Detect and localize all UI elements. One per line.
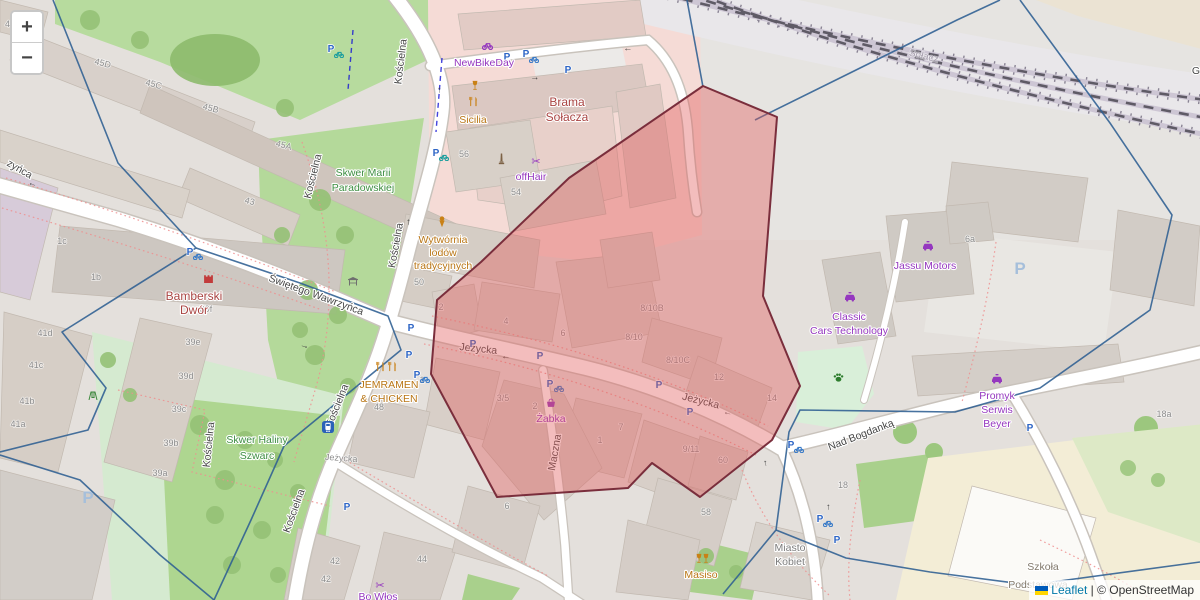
parking-icon: P xyxy=(328,44,335,55)
poi-label-brama-2: Sołacza xyxy=(546,110,589,124)
house-number: 42 xyxy=(330,556,340,566)
parking-icon: P xyxy=(406,350,413,361)
house-number: 39e xyxy=(185,337,200,347)
map-tiles: Kościelna Kościelna Kościelna Kościelna … xyxy=(0,0,1200,600)
house-number: 1b xyxy=(91,272,101,282)
street-label-partial-g: G xyxy=(1192,65,1200,77)
scissors-icon: ✂ xyxy=(531,156,540,168)
poi-label-promyk-2: Serwis xyxy=(981,404,1013,416)
house-number: 44 xyxy=(417,554,427,564)
openstreetmap-link[interactable]: © OpenStreetMap xyxy=(1097,583,1194,597)
zoom-out-button[interactable]: − xyxy=(12,42,42,73)
landmark-icon xyxy=(204,275,213,283)
poi-label-jassu: Jassu Motors xyxy=(894,260,956,272)
house-number: 41d xyxy=(37,328,52,338)
house-number: 56 xyxy=(459,149,469,159)
house-number: 18 xyxy=(838,480,848,490)
poi-label-jemramen-1: JEMRAMEN xyxy=(360,379,419,391)
poi-label-jemramen-2: & CHICKEN xyxy=(360,393,417,405)
poi-label-newbikeday: NewBikeDay xyxy=(454,57,515,69)
attribution-bar: Leaflet | © OpenStreetMap xyxy=(1029,580,1200,600)
poi-label-masiso: Masiso xyxy=(684,569,717,581)
oneway-arrow: → xyxy=(624,46,633,56)
poi-label-skwer-marii-1: Skwer Marii xyxy=(336,167,391,179)
zoom-control: + − xyxy=(10,10,44,75)
poi-label-classic-2: Cars Technology xyxy=(810,325,889,337)
house-number: 6 xyxy=(504,501,509,511)
house-number: 39c xyxy=(172,404,187,414)
parking-area-icon: P xyxy=(82,488,93,507)
poi-label-skwer-marii-2: Paradowskiej xyxy=(332,182,394,194)
poi-label-wytwornia-3: tradycyjnych xyxy=(414,260,473,272)
house-number: 39d xyxy=(178,371,193,381)
zoom-in-button[interactable]: + xyxy=(12,12,42,42)
oneway-arrow: → xyxy=(433,85,444,95)
house-number: 42 xyxy=(321,574,331,584)
house-number: 41a xyxy=(10,419,25,429)
parking-icon: P xyxy=(523,49,530,60)
house-number: 39b xyxy=(163,438,178,448)
parking-icon: P xyxy=(817,514,824,525)
house-number: 41c xyxy=(29,360,44,370)
parking-icon: P xyxy=(408,323,415,334)
parking-icon: P xyxy=(433,148,440,159)
poi-label-promyk-3: Beyer xyxy=(983,418,1011,430)
poi-label-miasto-1: Miasto xyxy=(775,542,806,554)
house-number: 50 xyxy=(414,277,424,287)
ukraine-flag-icon xyxy=(1035,586,1048,595)
house-number: 54 xyxy=(511,187,521,197)
leaflet-link[interactable]: Leaflet xyxy=(1051,583,1087,597)
poi-label-wytwornia-1: Wytwórnia xyxy=(419,234,468,246)
poi-label-sicilia: Sicilia xyxy=(459,114,487,126)
house-number: 1c xyxy=(57,236,67,246)
poi-label-offhair: offHair xyxy=(516,171,547,183)
parking-icon: P xyxy=(565,65,572,76)
poi-label-classic-1: Classic xyxy=(832,311,866,323)
poi-label-bamberski-1: Bamberski xyxy=(166,289,223,303)
parking-icon: P xyxy=(187,247,194,258)
house-number: 58 xyxy=(701,507,711,517)
parking-icon: P xyxy=(788,440,795,451)
poi-label-wytwornia-2: lodów xyxy=(429,247,457,259)
poi-label-bo-wlos: Bo Włos xyxy=(358,591,397,600)
oneway-arrow: → xyxy=(402,217,412,227)
parking-icon: P xyxy=(1027,423,1034,434)
poi-label-szkola-1: Szkoła xyxy=(1027,561,1059,573)
poi-label-bamberski-2: Dwór xyxy=(180,303,208,317)
poi-label-brama-1: Brama xyxy=(549,95,585,109)
tram-stop-icon xyxy=(322,421,334,433)
house-number: 18a xyxy=(1156,409,1171,419)
oneway-arrow: → xyxy=(822,502,833,512)
house-number: 39a xyxy=(152,468,167,478)
parking-icon: P xyxy=(344,502,351,513)
poi-label-skwer-haliny-2: Szwarc xyxy=(240,450,274,462)
map-canvas[interactable]: Kościelna Kościelna Kościelna Kościelna … xyxy=(0,0,1200,600)
poi-label-skwer-haliny-1: Skwer Haliny xyxy=(226,434,288,446)
poi-label-promyk-1: Promyk xyxy=(979,390,1015,402)
oneway-arrow: → xyxy=(530,72,540,83)
attribution-separator: | xyxy=(1091,583,1094,597)
parking-icon: P xyxy=(834,535,841,546)
parking-area-icon: P xyxy=(1014,259,1025,278)
house-number: 6a xyxy=(965,234,975,244)
house-number: 41b xyxy=(19,396,34,406)
poi-label-miasto-2: Kobiet xyxy=(775,556,805,568)
